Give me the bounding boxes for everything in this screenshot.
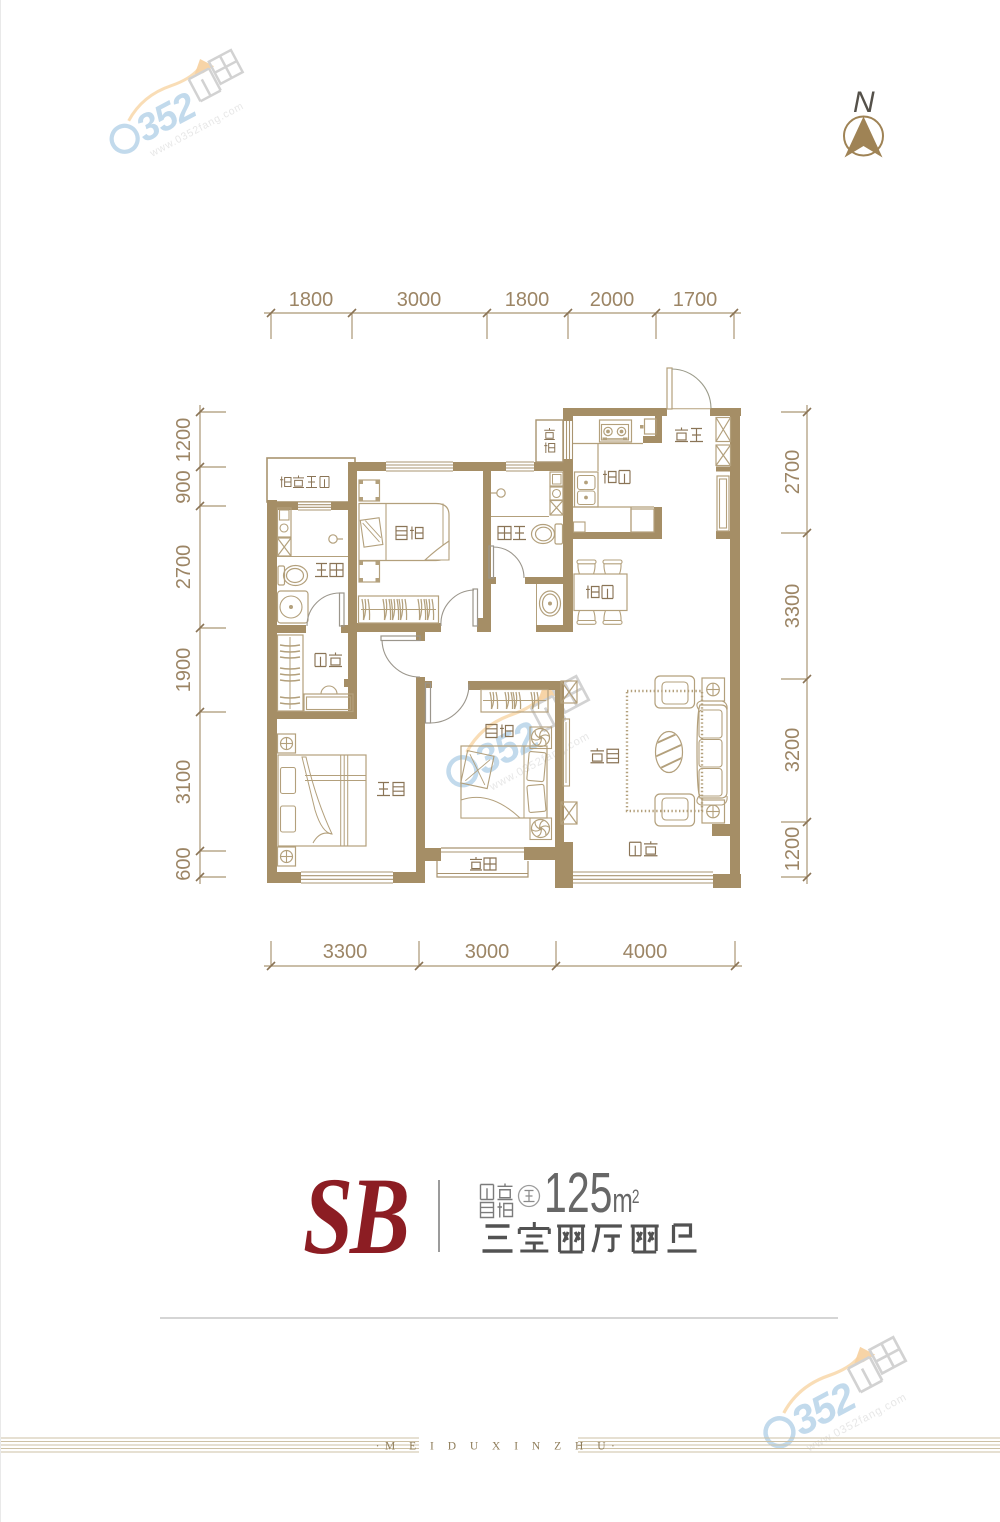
- svg-text:3100: 3100: [173, 760, 195, 805]
- svg-text:1200: 1200: [782, 827, 804, 872]
- svg-text:3300: 3300: [323, 941, 368, 963]
- svg-text:2700: 2700: [173, 545, 195, 590]
- svg-text:1700: 1700: [673, 289, 718, 311]
- svg-text:1900: 1900: [173, 648, 195, 693]
- svg-text:1800: 1800: [289, 289, 334, 311]
- svg-text:4000: 4000: [623, 941, 668, 963]
- svg-text:m: m: [612, 1182, 632, 1220]
- svg-text:125: 125: [544, 1160, 612, 1224]
- svg-text:2: 2: [632, 1186, 640, 1208]
- svg-text:3000: 3000: [465, 941, 510, 963]
- svg-text:N: N: [853, 86, 875, 119]
- svg-text:2000: 2000: [590, 289, 635, 311]
- svg-text:SB: SB: [303, 1155, 407, 1277]
- svg-text:900: 900: [173, 470, 195, 503]
- svg-text:600: 600: [173, 847, 195, 880]
- svg-text:1800: 1800: [505, 289, 550, 311]
- svg-text:2700: 2700: [782, 450, 804, 495]
- svg-text:3200: 3200: [782, 728, 804, 773]
- svg-text:3000: 3000: [397, 289, 442, 311]
- svg-text:1200: 1200: [173, 418, 195, 463]
- svg-text:·M E I D U X I N Z H U·: ·M E I D U X I N Z H U·: [376, 1441, 621, 1453]
- svg-text:3300: 3300: [782, 584, 804, 629]
